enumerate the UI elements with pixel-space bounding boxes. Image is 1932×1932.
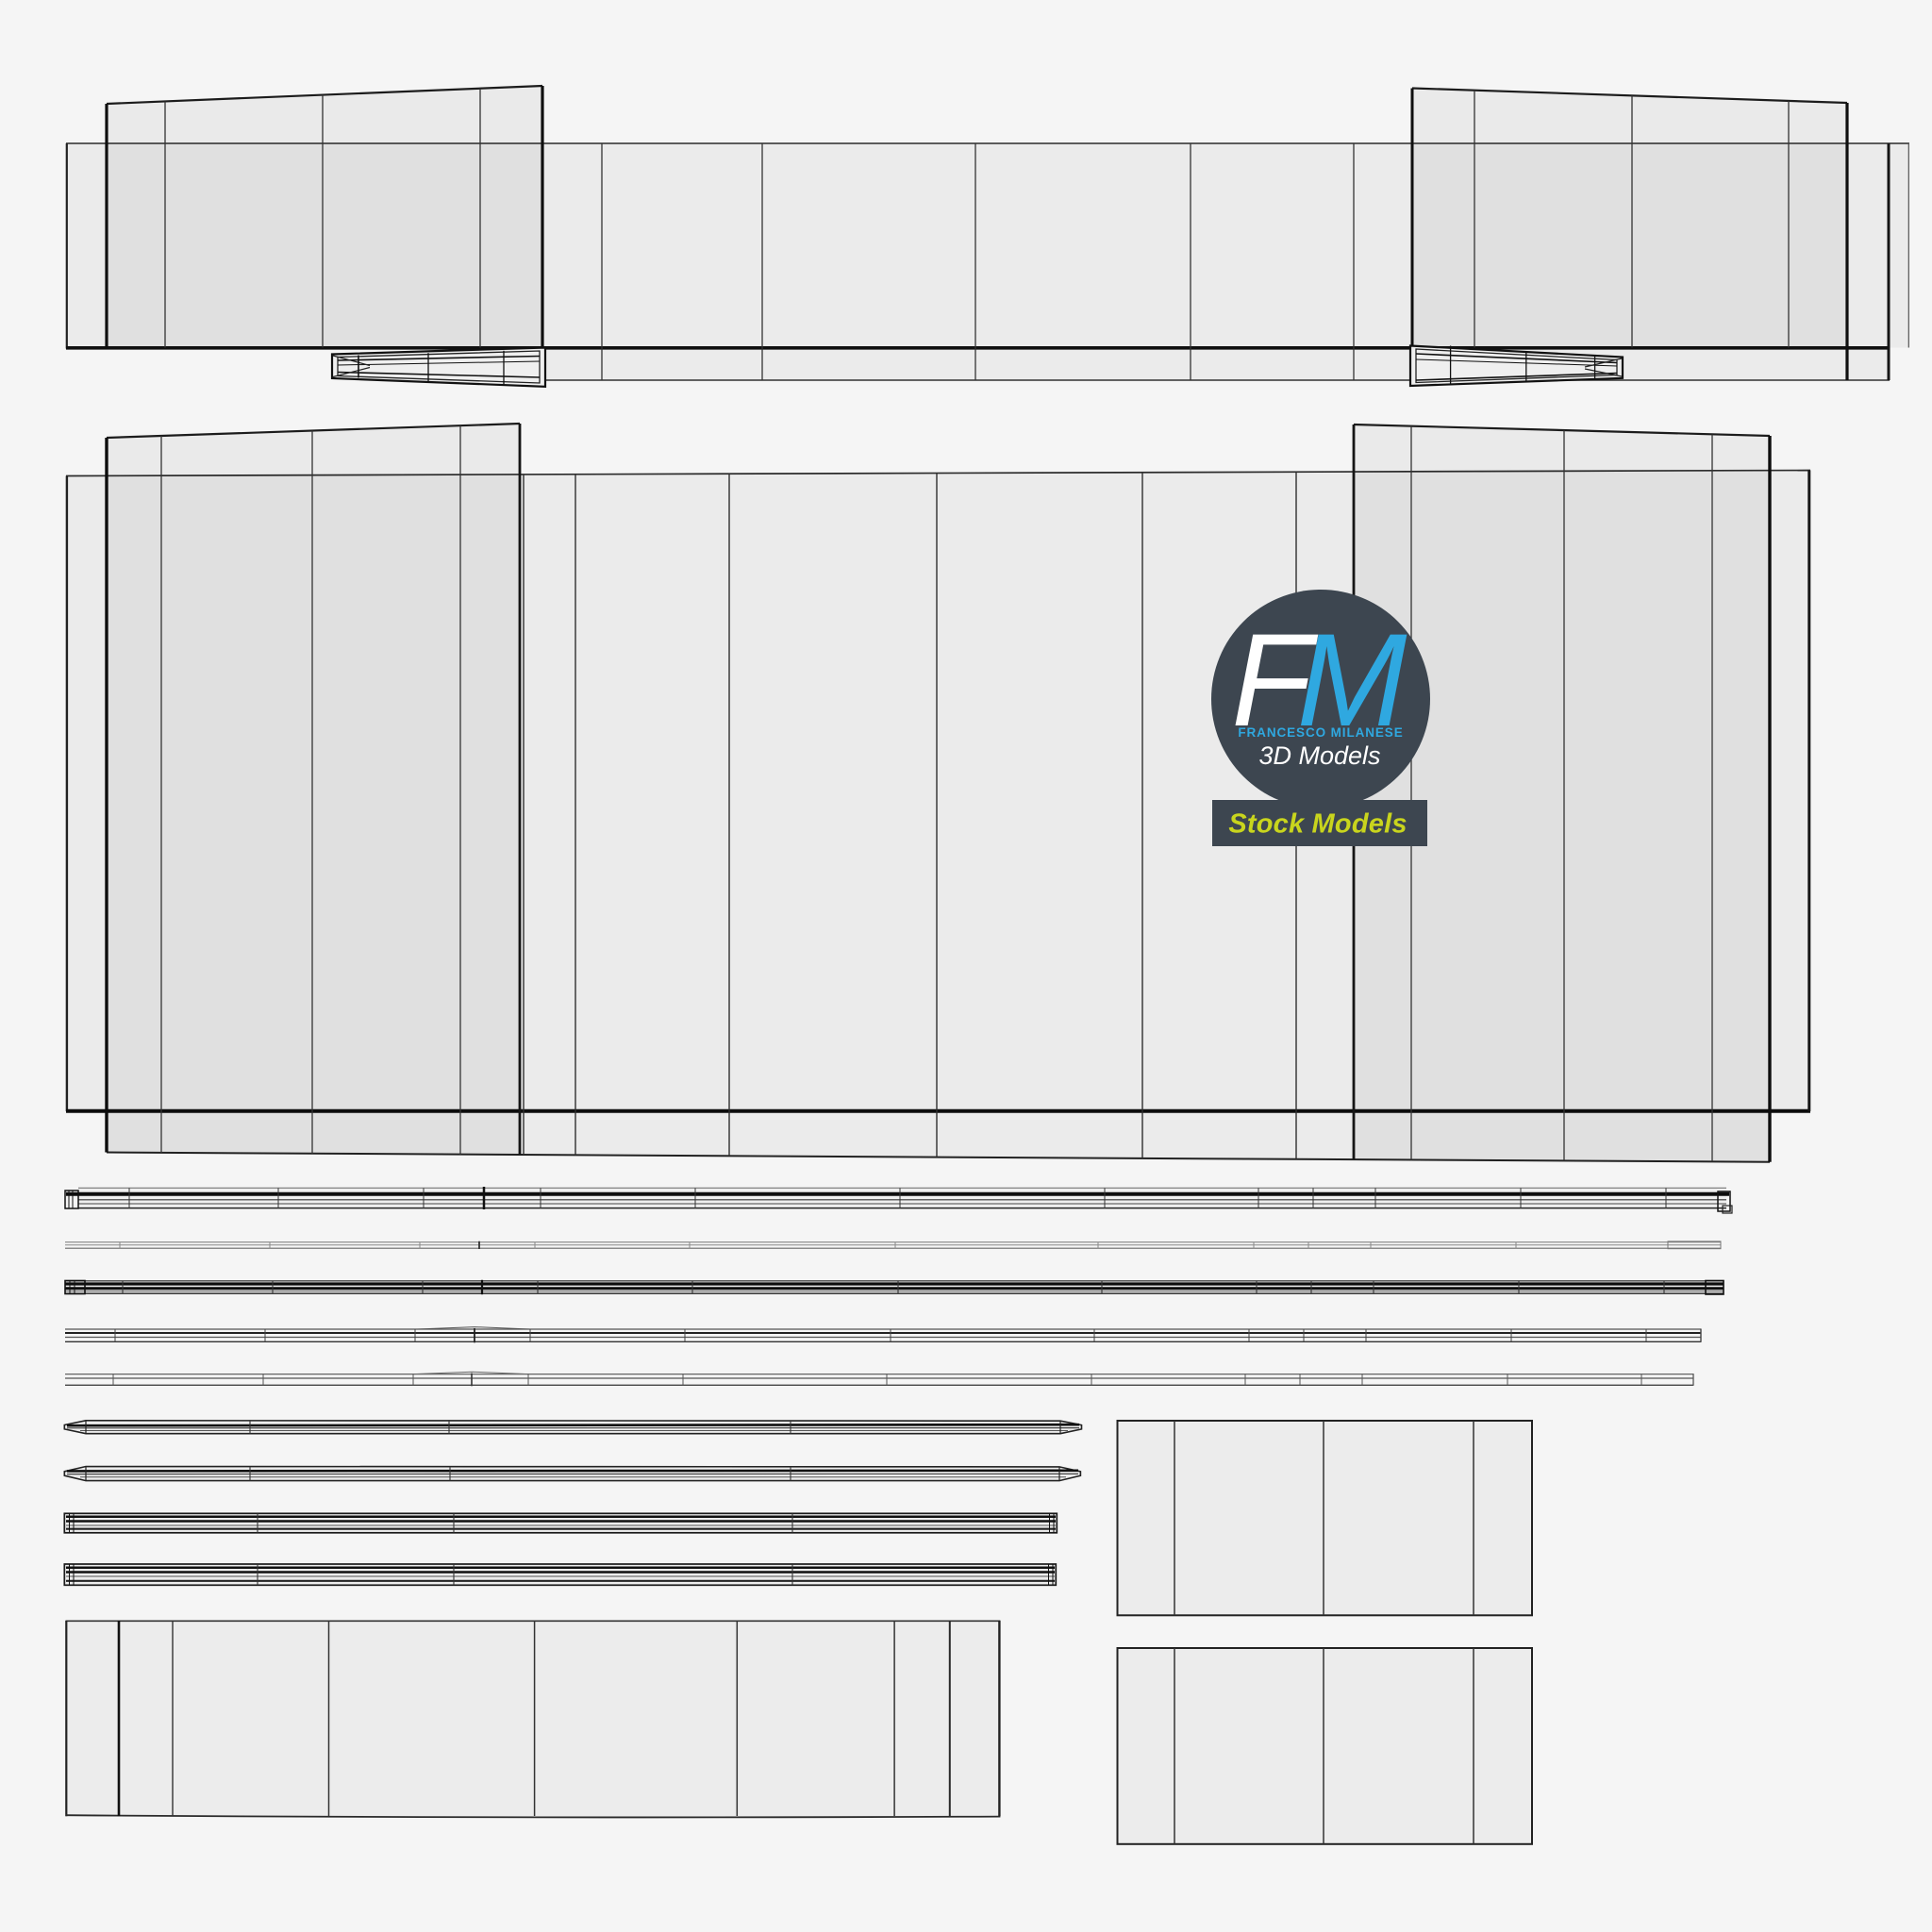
svg-text:Stock Models: Stock Models — [1228, 809, 1407, 840]
svg-text:3D Models: 3D Models — [1258, 741, 1380, 770]
svg-text:FRANCESCO MILANESE: FRANCESCO MILANESE — [1238, 725, 1403, 740]
